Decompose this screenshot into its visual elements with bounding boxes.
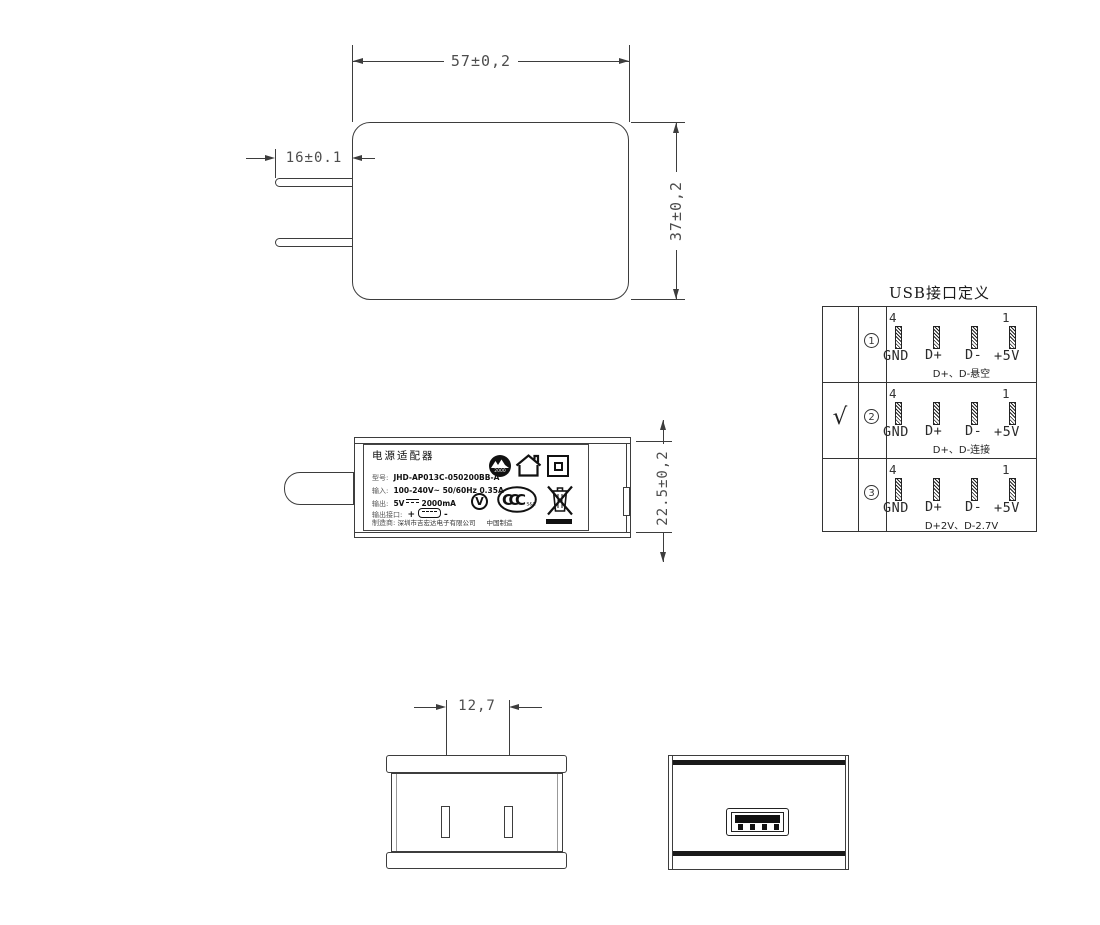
pin-number-1: 1 bbox=[1002, 386, 1010, 401]
class-ii-insulation-icon bbox=[547, 455, 569, 477]
plug-face-top-cap bbox=[386, 755, 567, 773]
row-selected-check: √ bbox=[824, 400, 856, 434]
mountain-logo-icon: 2000 bbox=[488, 454, 512, 478]
plug-face-body bbox=[391, 773, 563, 852]
dimension-line bbox=[246, 158, 266, 159]
pin-number-1: 1 bbox=[1002, 462, 1010, 477]
table-row-line bbox=[822, 382, 1037, 383]
usb-contact-tab bbox=[738, 824, 743, 830]
dim-arrow-icon bbox=[673, 123, 679, 133]
dim-arrow-icon bbox=[353, 58, 363, 64]
dim-arrow-icon bbox=[660, 552, 666, 562]
usb-contact-tab bbox=[750, 824, 755, 830]
extension-line bbox=[352, 45, 353, 122]
pin-label-dplus: D+ bbox=[925, 499, 942, 515]
row-number-badge: 2 bbox=[864, 409, 879, 424]
table-column-line bbox=[858, 306, 859, 532]
pin-label-dminus: D- bbox=[965, 423, 982, 439]
row-selected-check bbox=[824, 324, 856, 358]
pin-contact bbox=[1009, 402, 1016, 425]
pin-contact bbox=[1009, 326, 1016, 349]
svg-text:S&E: S&E bbox=[527, 502, 536, 508]
dim-arrow-icon bbox=[673, 289, 679, 299]
dim-arrow-icon bbox=[265, 155, 275, 161]
extension-line bbox=[629, 45, 630, 122]
prong-length-dimension: 16±0.1 bbox=[277, 150, 351, 166]
prong-slot-right bbox=[504, 806, 513, 838]
plug-prong-bottom bbox=[275, 238, 353, 247]
dim-arrow-icon bbox=[436, 704, 446, 710]
usb-connector-icon bbox=[418, 508, 441, 518]
pin-label-5v: +5V bbox=[994, 348, 1020, 364]
extension-line bbox=[636, 532, 672, 533]
pin-contact bbox=[1009, 478, 1016, 501]
efficiency-v-icon: V bbox=[471, 493, 488, 510]
pin-number-4: 4 bbox=[889, 310, 897, 325]
pin-contact bbox=[895, 326, 902, 349]
row-note: D+、D-连接 bbox=[888, 441, 1035, 456]
front-height-dimension: 37±0,2 bbox=[668, 172, 684, 250]
svg-text:2000: 2000 bbox=[494, 468, 506, 474]
front-width-dimension: 57±0,2 bbox=[444, 53, 518, 69]
extension-line bbox=[631, 299, 685, 300]
pin-contact bbox=[933, 478, 940, 501]
usb-contact-tab bbox=[774, 824, 779, 830]
pin-label-dminus: D- bbox=[965, 347, 982, 363]
pin-label-gnd: GND bbox=[883, 424, 909, 440]
plug-prong-top bbox=[275, 178, 353, 187]
row-number-badge: 3 bbox=[864, 485, 879, 500]
usb-face-inner-line bbox=[845, 756, 846, 869]
pin-label-dplus: D+ bbox=[925, 347, 942, 363]
label-title: 电源适配器 bbox=[372, 448, 435, 463]
dim-arrow-icon bbox=[352, 155, 362, 161]
plug-prong-side bbox=[284, 472, 354, 505]
row-note: D+、D-悬空 bbox=[888, 365, 1035, 380]
table-column-line bbox=[886, 306, 887, 532]
usb-table-title: USB接口定义 bbox=[857, 282, 1022, 303]
plug-face-bottom-cap bbox=[386, 852, 567, 869]
pin-contact bbox=[895, 402, 902, 425]
pin-label-dminus: D- bbox=[965, 499, 982, 515]
pin-contact bbox=[971, 478, 978, 501]
row-number-badge: 1 bbox=[864, 333, 879, 348]
dim-arrow-icon bbox=[619, 58, 629, 64]
label-maker-line: 制造商: 深圳市吉宏达电子有限公司 中国制造 bbox=[372, 517, 513, 528]
side-body-flange-line bbox=[354, 532, 631, 533]
adapter-front-body bbox=[352, 122, 629, 300]
pin-label-5v: +5V bbox=[994, 424, 1020, 440]
indoor-use-house-icon bbox=[514, 453, 543, 478]
pin-number-1: 1 bbox=[1002, 310, 1010, 325]
maker-key: 制造商: bbox=[372, 519, 395, 527]
usb-port-side-notch bbox=[623, 487, 630, 516]
usb-tongue bbox=[735, 815, 780, 823]
prong-slot-left bbox=[441, 806, 450, 838]
pin-label-5v: +5V bbox=[994, 500, 1020, 516]
svg-text:CCC: CCC bbox=[502, 491, 526, 509]
pin-contact bbox=[933, 402, 940, 425]
pin-number-4: 4 bbox=[889, 462, 897, 477]
extension-line bbox=[275, 149, 276, 178]
usb-contact-tab bbox=[762, 824, 767, 830]
dim-arrow-icon bbox=[660, 420, 666, 430]
maker-value: 深圳市吉宏达电子有限公司 bbox=[397, 519, 475, 527]
pin-contact bbox=[933, 326, 940, 349]
dimension-line bbox=[414, 707, 437, 708]
pin-contact bbox=[895, 478, 902, 501]
pin-number-4: 4 bbox=[889, 386, 897, 401]
weee-bin-icon bbox=[545, 484, 575, 517]
ccc-mark-icon: CCC S&E bbox=[497, 486, 537, 513]
dimension-line bbox=[362, 158, 375, 159]
plug-face-inner-line bbox=[557, 774, 558, 851]
weee-bar bbox=[546, 519, 572, 524]
pin-contact bbox=[971, 326, 978, 349]
pin-label-dplus: D+ bbox=[925, 423, 942, 439]
dimension-line bbox=[519, 707, 542, 708]
made-in-china: 中国制造 bbox=[487, 519, 513, 527]
adapter-technical-drawing: 57±0,2 37±0,2 16±0.1 22.5±0,2 电源适配器 型号: … bbox=[0, 0, 1100, 925]
table-row-line bbox=[822, 458, 1037, 459]
pin-label-gnd: GND bbox=[883, 500, 909, 516]
usb-face-bottom-band bbox=[673, 851, 845, 856]
row-selected-check bbox=[824, 476, 856, 510]
pin-label-gnd: GND bbox=[883, 348, 909, 364]
pin-contact bbox=[971, 402, 978, 425]
usb-face-top-band bbox=[673, 760, 845, 765]
plug-face-inner-line bbox=[396, 774, 397, 851]
pin-pitch-dimension: 12,7 bbox=[447, 698, 507, 714]
side-height-dimension: 22.5±0,2 bbox=[655, 444, 671, 532]
extension-line bbox=[636, 441, 672, 442]
dim-arrow-icon bbox=[509, 704, 519, 710]
row-note: D+2V、D-2.7V bbox=[888, 517, 1035, 532]
